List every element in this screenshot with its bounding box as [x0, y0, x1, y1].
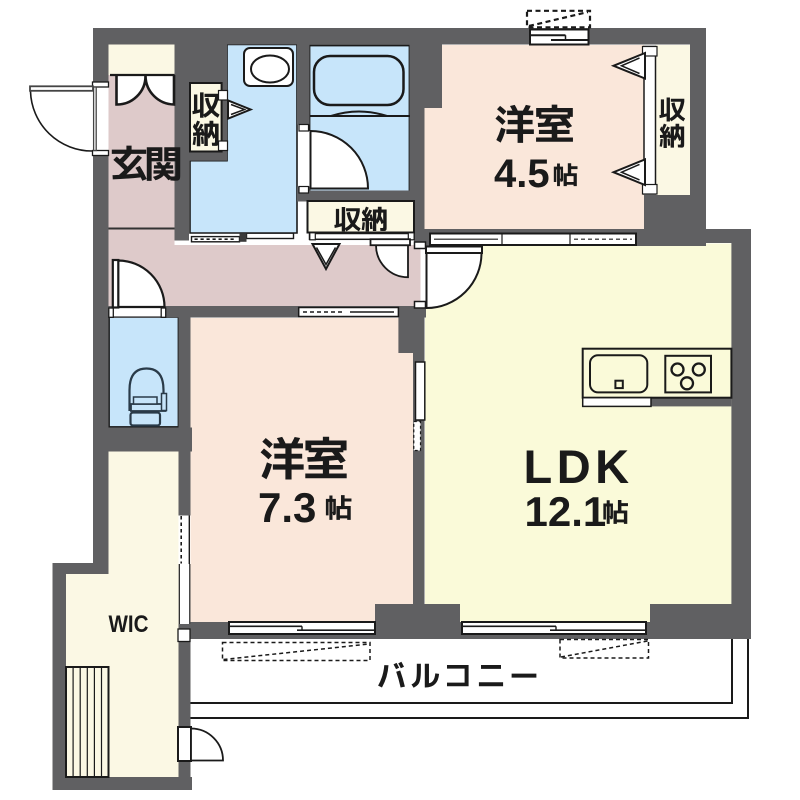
svg-text:LDK: LDK: [524, 440, 634, 493]
svg-text:WIC: WIC: [109, 610, 149, 637]
svg-text:7.3: 7.3: [258, 484, 316, 531]
svg-text:4.5: 4.5: [494, 152, 550, 196]
svg-text:12.1: 12.1: [525, 488, 607, 535]
